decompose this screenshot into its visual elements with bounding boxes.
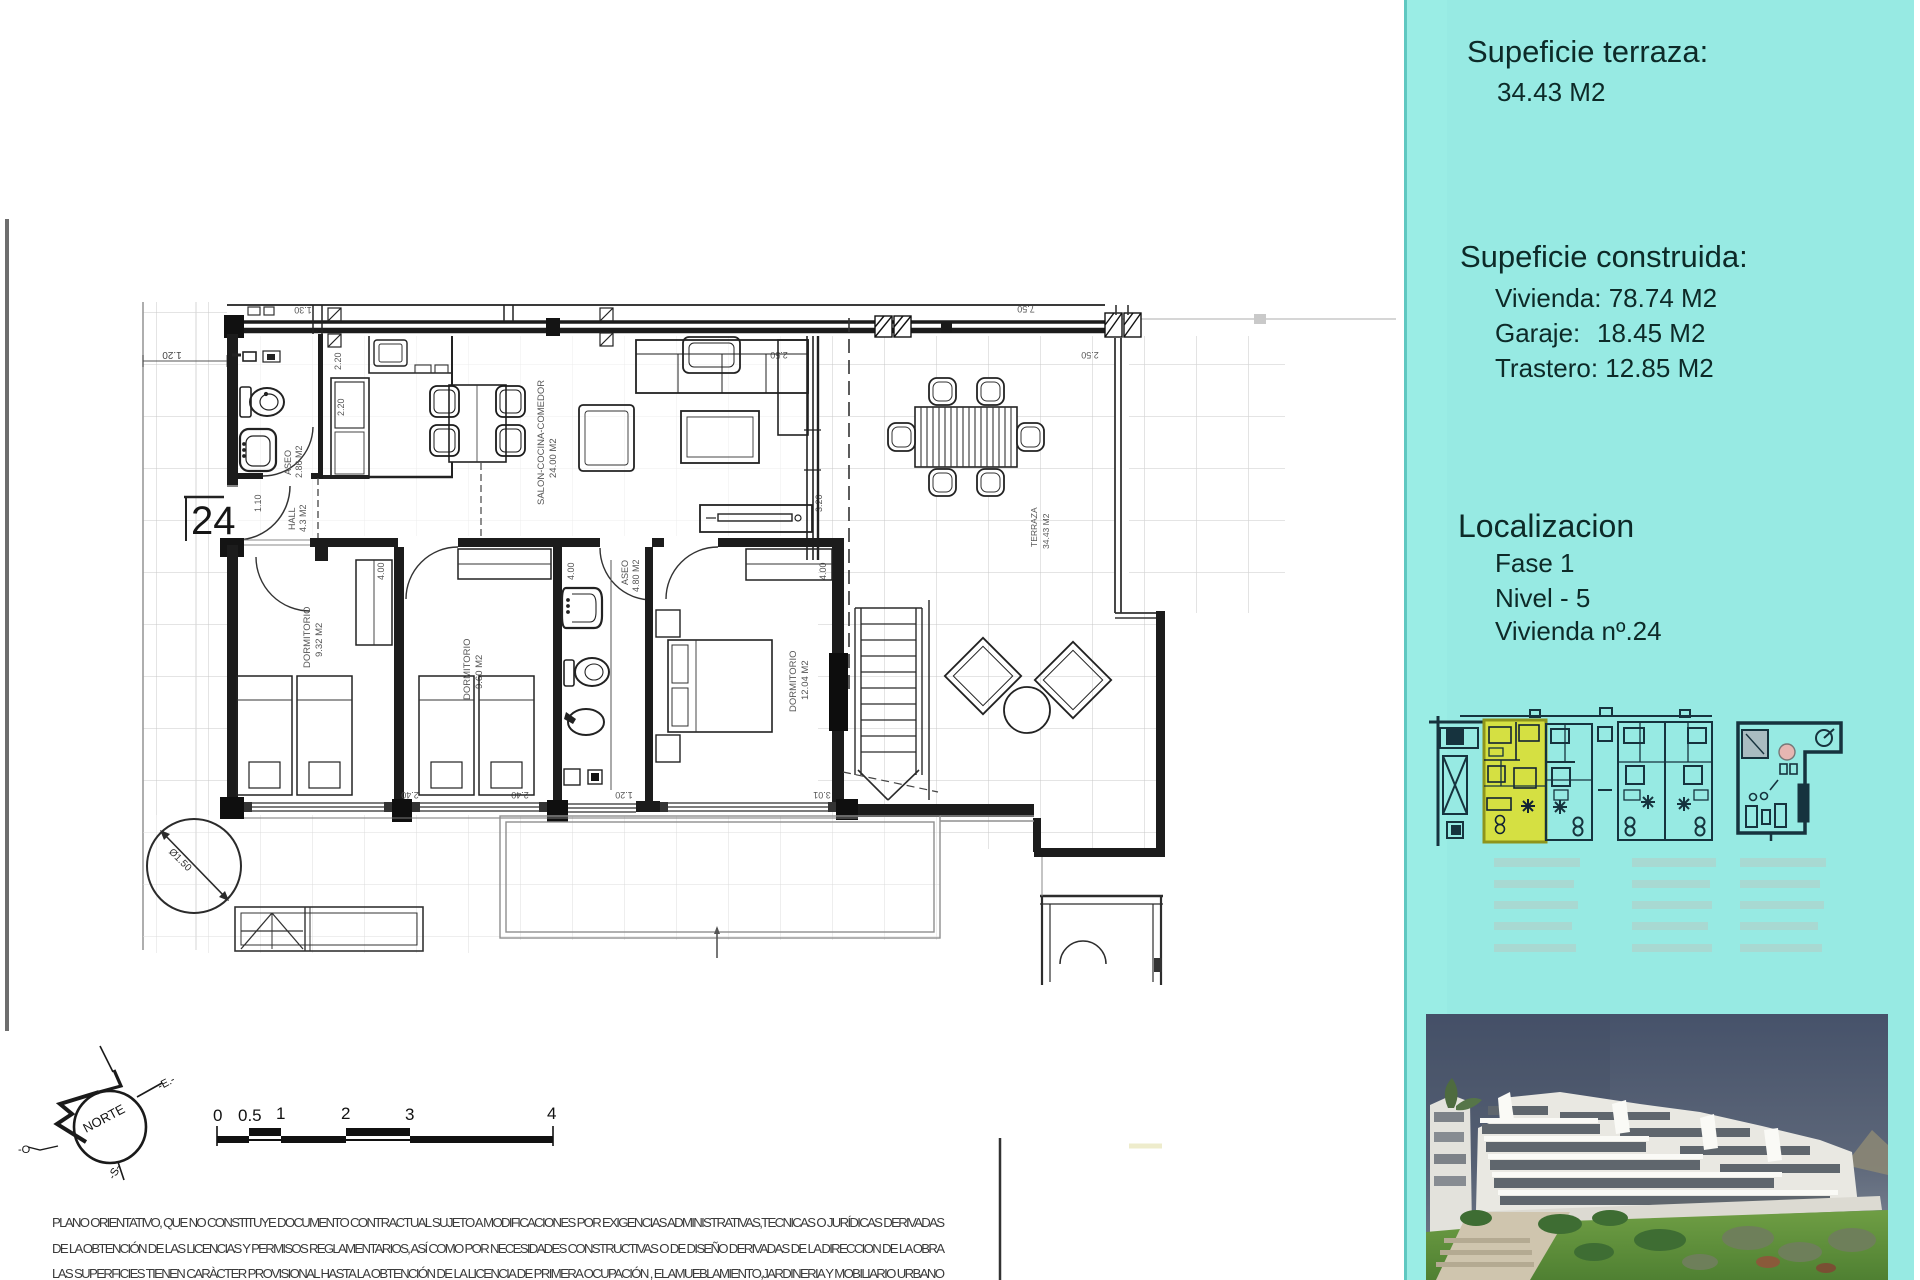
svg-text:9.32 M2: 9.32 M2: [314, 623, 325, 657]
svg-text:4: 4: [547, 1104, 556, 1123]
svg-text:DE LA OBTENCIÓN DE LAS LICENCI: DE LA OBTENCIÓN DE LAS LICENCIAS Y PERMI…: [52, 1241, 945, 1256]
svg-text:DORMITORIO: DORMITORIO: [302, 606, 313, 668]
svg-text:4.00: 4.00: [566, 562, 576, 580]
svg-text:3.01: 3.01: [813, 790, 831, 800]
svg-text:4.00: 4.00: [818, 562, 828, 580]
svg-text:24.00 M2: 24.00 M2: [548, 438, 559, 478]
svg-text:4.3 M2: 4.3 M2: [298, 504, 308, 532]
svg-text:TERRAZA: TERRAZA: [1029, 507, 1039, 547]
svg-text:Vivienda: 78.74 M2: Vivienda: 78.74 M2: [1495, 283, 1717, 313]
svg-text:2.86 M2: 2.86 M2: [294, 445, 304, 478]
svg-text:3: 3: [405, 1105, 414, 1124]
svg-text:Localizacion: Localizacion: [1458, 508, 1634, 544]
svg-text:24: 24: [191, 499, 236, 543]
svg-text:0.5: 0.5: [238, 1106, 262, 1125]
svg-text:LAS SUPERFICIES TIENEN CARÀCTE: LAS SUPERFICIES TIENEN CARÀCTER PROVISIO…: [52, 1266, 945, 1280]
svg-text:Nivel - 5: Nivel - 5: [1495, 583, 1590, 613]
svg-text:1.20: 1.20: [162, 349, 182, 360]
svg-text:0: 0: [213, 1106, 222, 1125]
svg-text:4.80 M2: 4.80 M2: [631, 559, 641, 592]
svg-text:Garaje:: Garaje:: [1495, 318, 1580, 348]
svg-text:1.10: 1.10: [253, 494, 263, 512]
svg-text:Fase 1: Fase 1: [1495, 548, 1575, 578]
svg-text:2.20: 2.20: [333, 352, 343, 370]
svg-text:7.50: 7.50: [1017, 304, 1035, 314]
svg-text:ASEO: ASEO: [283, 450, 293, 475]
svg-text:34.43 M2: 34.43 M2: [1497, 77, 1605, 107]
svg-text:HALL: HALL: [287, 507, 297, 530]
svg-text:1: 1: [276, 1104, 285, 1123]
svg-text:Supeficie construida:: Supeficie construida:: [1460, 239, 1748, 274]
svg-text:4.00: 4.00: [376, 562, 386, 580]
svg-text:2: 2: [341, 1104, 350, 1123]
svg-text:34.43 M2: 34.43 M2: [1041, 513, 1051, 549]
svg-text:2.20: 2.20: [336, 398, 346, 416]
svg-text:Trastero: 12.85 M2: Trastero: 12.85 M2: [1495, 353, 1714, 383]
svg-text:SALON-COCINA-COMEDOR: SALON-COCINA-COMEDOR: [536, 380, 547, 505]
svg-text:2.40: 2.40: [401, 790, 419, 800]
svg-text:DORMITORIO: DORMITORIO: [462, 638, 473, 700]
svg-text:ASEO: ASEO: [620, 560, 630, 585]
svg-text:Supeficie terraza:: Supeficie terraza:: [1467, 34, 1708, 69]
svg-text:18.45 M2: 18.45 M2: [1597, 318, 1705, 348]
svg-text:1.20: 1.20: [615, 790, 633, 800]
svg-text:2.50: 2.50: [770, 350, 788, 360]
svg-text:PLANO ORIENTATIVO, QUE NO CONS: PLANO ORIENTATIVO, QUE NO CONSTITUYE DOC…: [52, 1215, 945, 1230]
svg-text:12.04 M2: 12.04 M2: [800, 660, 811, 700]
svg-text:-O: -O: [18, 1144, 31, 1156]
svg-text:Vivienda nº.24: Vivienda nº.24: [1495, 616, 1662, 646]
svg-text:DORMITORIO: DORMITORIO: [788, 650, 799, 712]
svg-text:1.30: 1.30: [294, 305, 312, 315]
svg-text:2.50: 2.50: [1081, 350, 1099, 360]
